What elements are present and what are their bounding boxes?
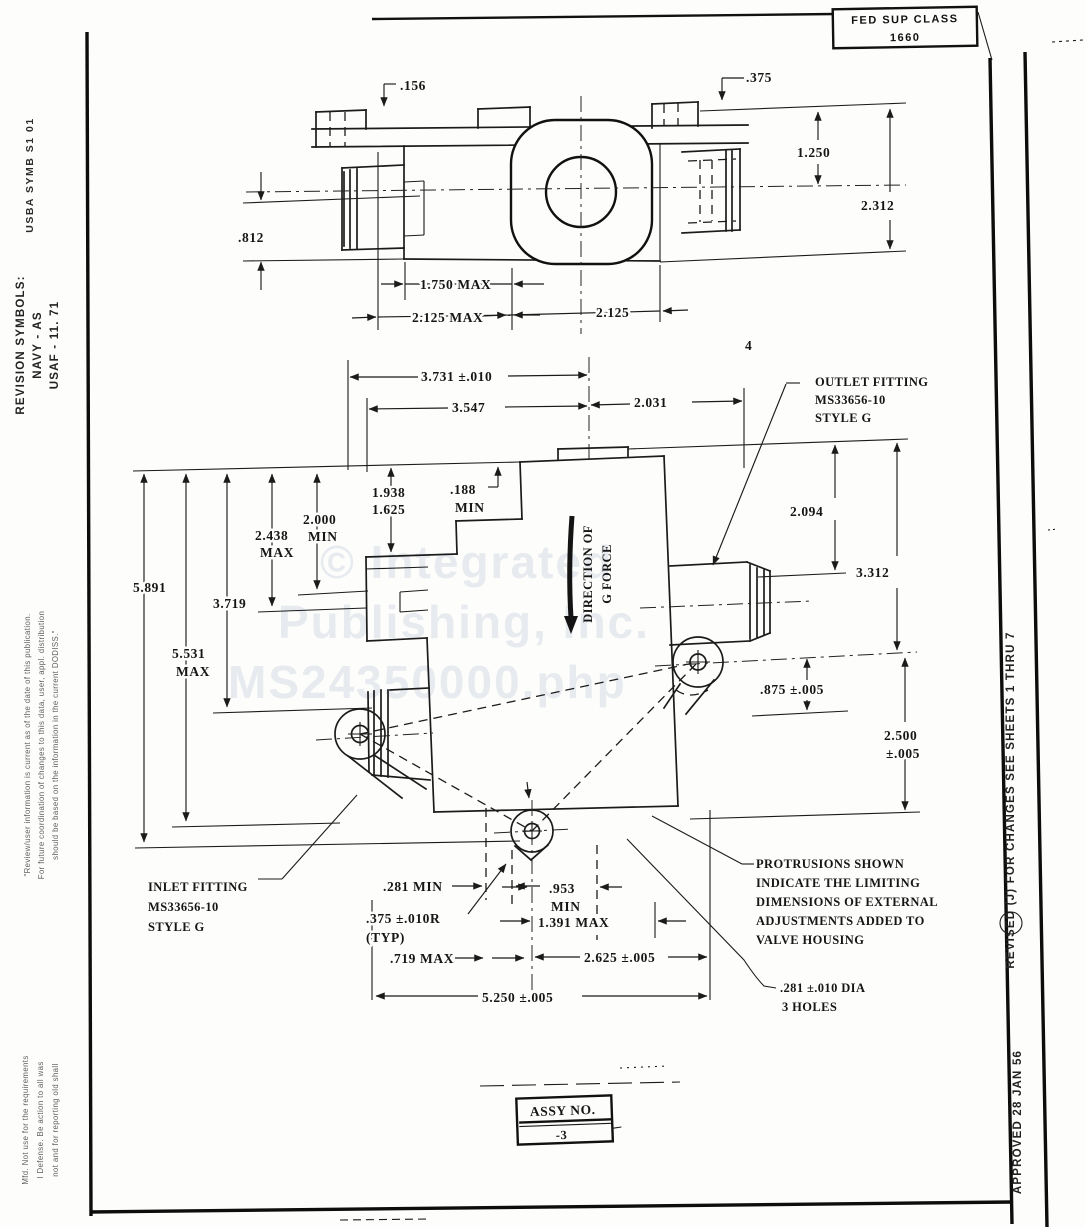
margin-bottom-line1: Mfd. Not use for the requirements: [21, 1055, 30, 1184]
dim-3719: 3.719: [213, 596, 246, 611]
dim-3547: 3.547: [452, 400, 485, 415]
protrusion-note-line2: INDICATE THE LIMITING: [756, 876, 920, 890]
dim-3312: 3.312: [856, 565, 889, 580]
drawing-svg: © Integrated Publishing, Inc. MS24350000…: [0, 0, 1085, 1227]
protrusion-note-line1: PROTRUSIONS SHOWN: [756, 857, 904, 871]
dim-953-min: MIN: [551, 899, 581, 914]
protrusion-note-line5: VALVE HOUSING: [756, 933, 864, 947]
dim-2625: 2.625 ±.005: [584, 950, 655, 965]
dim-2500-tol: ±.005: [886, 746, 920, 761]
dim-1750-max: 1.750 MAX: [420, 277, 491, 292]
dim-1391-max: 1.391 MAX: [538, 915, 609, 930]
protrusion-note-line4: ADJUSTMENTS ADDED TO: [756, 914, 925, 928]
holes-note-line2: 3 HOLES: [782, 1000, 837, 1014]
dim-5250: 5.250 ±.005: [482, 990, 553, 1005]
dim-375r-typ: (TYP): [366, 930, 405, 945]
dim-2500: 2.500: [884, 728, 917, 743]
outlet-fitting-label: OUTLET FITTING: [815, 375, 928, 389]
dim-953: .953: [549, 881, 575, 896]
dim-2000-min: MIN: [308, 529, 338, 544]
dim-2438: 2.438: [255, 528, 288, 543]
dim-5531: 5.531: [172, 646, 205, 661]
outlet-fitting-style: STYLE G: [815, 411, 872, 425]
holes-note-line1: .281 ±.010 DIA: [780, 981, 865, 995]
revision-usaf: USAF - 11. 71: [49, 301, 61, 389]
dim-2094: 2.094: [790, 504, 823, 519]
fed-sup-class-label: FED SUP CLASS: [851, 13, 959, 27]
inlet-fitting-style: STYLE G: [148, 920, 205, 934]
protrusion-note-line3: DIMENSIONS OF EXTERNAL: [756, 895, 938, 909]
dim-1938: 1.938: [372, 485, 405, 500]
dim-1250: 1.250: [797, 145, 830, 160]
gforce-label-line1: DIRECTION OF: [581, 525, 595, 623]
assy-no-box: ASSY NO. -3: [516, 1095, 622, 1145]
margin-bottom-line3: not and for reporting old shall: [51, 1063, 60, 1176]
dim-2125: 2.125: [596, 305, 629, 320]
margin-bottom-line2: I Defense. Be action to all was: [36, 1061, 45, 1178]
dim-719-max: .719 MAX: [390, 951, 454, 966]
dim-2031: 2.031: [634, 395, 667, 410]
fed-sup-class-box: FED SUP CLASS 1660: [833, 7, 978, 49]
inlet-fitting-label: INLET FITTING: [148, 880, 248, 894]
dim-188: .188: [450, 482, 476, 497]
dim-2312: 2.312: [861, 198, 894, 213]
top-view: .156 .375 1.250 2.312 .812 1.750 MAX 2.1…: [238, 70, 906, 353]
gforce-label-line2: G FORCE: [600, 544, 614, 603]
approved-note: APPROVED 28 JAN 56: [1012, 1050, 1024, 1194]
dim-2125-max: 2.125 MAX: [412, 310, 483, 325]
user-symb-note: USBA SYMB S1 01: [24, 117, 36, 232]
inlet-fitting-spec: MS33656-10: [148, 900, 219, 914]
dim-375: .375: [746, 70, 772, 85]
dim-875: .875 ±.005: [760, 682, 824, 697]
dim-5891: 5.891: [133, 580, 166, 595]
dim-281-min: .281 MIN: [383, 879, 443, 894]
margin-note-line2: For future coordination of changes to th…: [37, 611, 46, 879]
dim-1625: 1.625: [372, 502, 405, 517]
revision-symbols-title: REVISION SYMBOLS:: [15, 275, 27, 414]
dim-2438-max: MAX: [260, 545, 294, 560]
drawing-sheet: © Integrated Publishing, Inc. MS24350000…: [0, 0, 1085, 1227]
revision-navy: NAVY - AS: [32, 311, 44, 378]
top-view-lines: [243, 96, 906, 334]
dim-2000: 2.000: [303, 512, 336, 527]
corner-mark: 4: [745, 338, 752, 353]
revised-note: REVISED (J) FOR CHANGES SEE SHEETS 1 THR…: [1005, 631, 1017, 968]
dim-5531-max: MAX: [176, 664, 210, 679]
assy-no-value: -3: [556, 1128, 568, 1142]
fed-sup-class-value: 1660: [890, 32, 921, 45]
dim-375r: .375 ±.010R: [366, 911, 440, 926]
outlet-fitting-spec: MS33656-10: [815, 393, 886, 407]
assy-no-label: ASSY NO.: [530, 1102, 596, 1119]
margin-note-line1: "Review/user information is current as o…: [23, 613, 32, 876]
dim-156: .156: [400, 78, 426, 93]
left-margin-text: USBA SYMB S1 01 REVISION SYMBOLS: NAVY -…: [15, 117, 61, 1184]
dim-812: .812: [238, 230, 264, 245]
dim-188-min: MIN: [455, 500, 485, 515]
margin-note-line3: should be based on the information in th…: [51, 630, 60, 860]
dim-3731: 3.731 ±.010: [421, 369, 492, 384]
